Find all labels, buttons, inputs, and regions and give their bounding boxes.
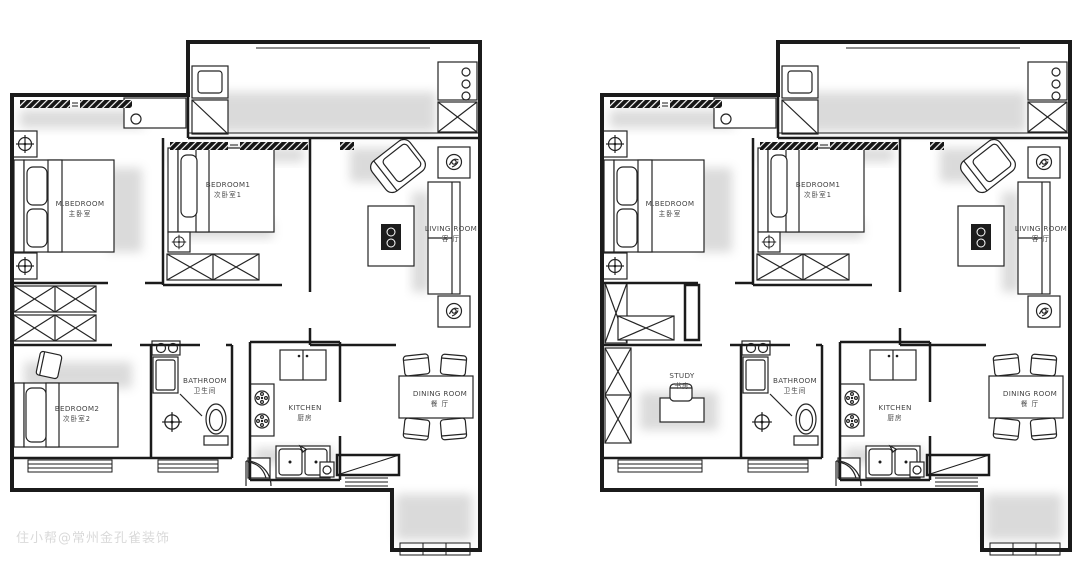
label-bathroom-en: BATHROOM [183, 376, 227, 385]
label-m-bedroom-en: M.BEDROOM [646, 199, 695, 208]
floorplan-canvas: M.BEDROOM 主卧室 BEDROOM1 次卧室1 LIVING ROOM … [0, 0, 1080, 569]
plan-original: M.BEDROOM 主卧室 BEDROOM1 次卧室1 LIVING ROOM … [12, 42, 480, 555]
label-living-zh: 客 厅 [1032, 234, 1050, 243]
label-kitchen-en: KITCHEN [288, 403, 321, 412]
label-study-zh: 书房 [674, 381, 689, 390]
label-kitchen-en: KITCHEN [878, 403, 911, 412]
label-bathroom-zh: 卫生间 [194, 386, 217, 395]
label-bedroom1-en: BEDROOM1 [206, 180, 251, 189]
watermark: 住小帮@常州金孔雀装饰 [16, 527, 170, 546]
label-bedroom1-zh: 次卧室1 [804, 190, 832, 199]
label-dining-en: DINING ROOM [1003, 389, 1057, 398]
label-m-bedroom-en: M.BEDROOM [56, 199, 105, 208]
label-m-bedroom-zh: 主卧室 [69, 209, 92, 218]
label-bedroom1-en: BEDROOM1 [796, 180, 841, 189]
label-dining-en: DINING ROOM [413, 389, 467, 398]
label-bathroom-zh: 卫生间 [784, 386, 807, 395]
label-bedroom1-zh: 次卧室1 [214, 190, 242, 199]
label-living-en: LIVING ROOM [1015, 224, 1067, 233]
label-m-bedroom-zh: 主卧室 [659, 209, 682, 218]
label-bathroom-en: BATHROOM [773, 376, 817, 385]
label-kitchen-zh: 厨房 [887, 413, 902, 422]
label-living-zh: 客 厅 [442, 234, 460, 243]
floorplan-drawing: M.BEDROOM 主卧室 BEDROOM1 次卧室1 LIVING ROOM … [0, 0, 1080, 569]
label-bedroom2-zh: 次卧室2 [63, 414, 91, 423]
label-study-en: STUDY [669, 371, 695, 380]
label-living-en: LIVING ROOM [425, 224, 477, 233]
plan-variant: M.BEDROOM 主卧室 BEDROOM1 次卧室1 LIVING ROOM … [602, 42, 1070, 555]
label-kitchen-zh: 厨房 [297, 413, 312, 422]
label-dining-zh: 餐 厅 [431, 399, 449, 408]
label-bedroom2-en: BEDROOM2 [55, 404, 100, 413]
label-dining-zh: 餐 厅 [1021, 399, 1039, 408]
